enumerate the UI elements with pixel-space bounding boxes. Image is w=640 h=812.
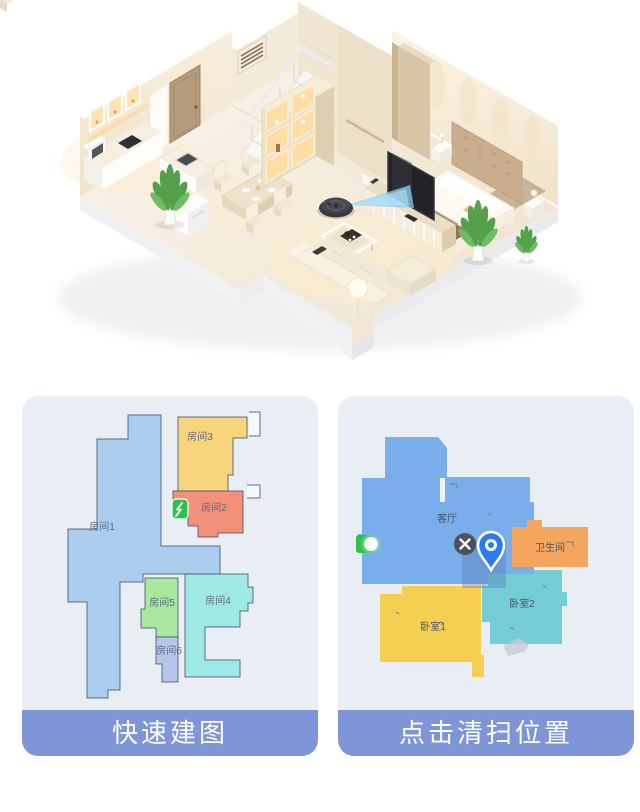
room-label: 房间3 [187,430,213,443]
caption-quick-mapping: 快速建图 [22,710,318,756]
map-panels: 房间1 房间2 房间3 房间4 房间5 房间6 快速建图 [0,396,640,756]
map-room-living-room[interactable] [358,437,534,584]
map-room-room3[interactable] [178,417,247,491]
room-label: 客厅 [437,512,457,525]
dock-icon [172,499,188,519]
room-label: 房间2 [201,501,227,514]
apartment-3d-render [0,0,640,378]
room-label: 卧室2 [509,597,535,610]
room-label: 卧室1 [420,620,446,633]
close-icon[interactable] [454,533,476,555]
caption-spot-clean: 点击清扫位置 [338,710,634,756]
map-unexplored-outline [249,412,260,436]
dock-icon [356,534,381,554]
wardrobe [392,42,436,160]
map-wall-gap [440,478,445,502]
page: 房间1 房间2 房间3 房间4 房间5 房间6 快速建图 [0,0,640,812]
room-label: 房间6 [156,644,182,657]
panel-quick-mapping[interactable]: 房间1 房间2 房间3 房间4 房间5 房间6 快速建图 [22,396,318,756]
panel-spot-clean[interactable]: 客厅 卫生间 卧室1 卧室2 [338,396,634,756]
map-room-room6[interactable] [156,637,178,682]
map-room-room4[interactable] [185,574,253,677]
map-unexplored-outline [247,485,260,498]
room-label: 房间5 [149,596,175,609]
room-label: 房间1 [89,520,115,533]
quick-map: 房间1 房间2 房间3 房间4 房间5 房间6 [22,396,318,710]
room-label: 卫生间 [535,541,565,554]
room-label: 房间4 [205,594,231,607]
spot-clean-map: 客厅 卫生间 卧室1 卧室2 [338,396,634,710]
